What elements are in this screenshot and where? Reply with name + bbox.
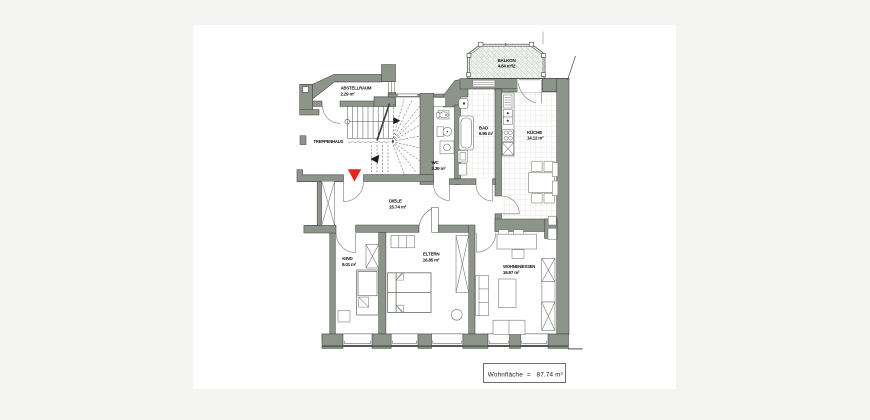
svg-text:6.95 m²: 6.95 m² [479,131,494,136]
svg-text:KÜCHE: KÜCHE [527,129,542,135]
svg-text:9.01 m²: 9.01 m² [342,262,357,267]
svg-text:TREPPENHAUS: TREPPENHAUS [314,139,344,144]
svg-text:WOHNEN/ESSEN: WOHNEN/ESSEN [503,264,535,269]
svg-text:15.74 m²: 15.74 m² [389,205,407,210]
svg-text:4.84 m²/2: 4.84 m²/2 [498,64,516,69]
svg-text:KIND: KIND [342,256,353,261]
svg-text:BAD: BAD [479,125,489,130]
svg-text:ABSTELLRAUM: ABSTELLRAUM [341,86,372,91]
svg-text:3.39 m²: 3.39 m² [432,166,447,171]
svg-text:DIELE: DIELE [389,199,402,204]
svg-text:WC: WC [432,160,440,165]
svg-text:BALKON: BALKON [497,58,515,63]
svg-text:Wohnfläche = 87.74 m²: Wohnfläche = 87.74 m² [488,371,563,378]
svg-text:16.85 m²: 16.85 m² [423,257,440,262]
svg-text:2.29 m²: 2.29 m² [341,91,356,96]
svg-text:ELTERN: ELTERN [423,251,439,256]
svg-text:14.12 m²: 14.12 m² [527,136,544,141]
svg-text:16.97 m²: 16.97 m² [503,270,520,275]
